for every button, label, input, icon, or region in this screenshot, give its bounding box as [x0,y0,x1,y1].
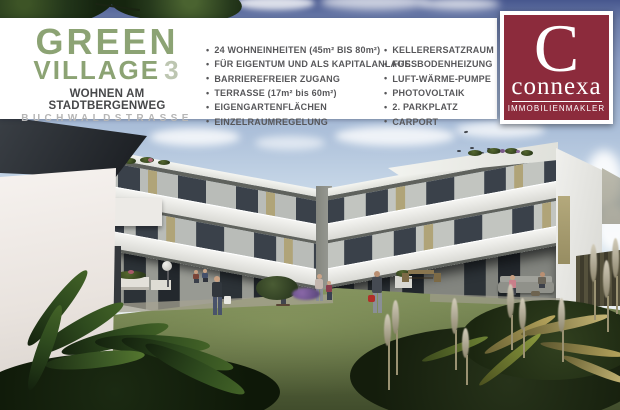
person-figure [326,281,332,300]
grass-plume [462,328,469,358]
person-figure [372,271,382,313]
plume-stem [455,330,457,370]
roof-flower [516,150,520,153]
garden-table [408,270,434,274]
plume-stem [562,330,564,362]
bullet-icon: • [384,117,387,126]
feature-text: KELLERERSATZRAUM [392,45,494,55]
roof-plant [158,160,170,165]
feature-list-right: •KELLERERSATZRAUM •FUSSBODENHEIZUNG •LUF… [384,43,494,129]
bullet-icon: • [384,60,387,69]
cloud [255,136,325,150]
bullet-icon: • [206,103,209,112]
grass-plume [507,284,514,318]
bullet-icon: • [206,89,209,98]
lavender-patch [292,288,320,300]
grass-plume [519,298,526,330]
scooter [276,304,290,306]
feature-item: •KELLERERSATZRAUM [384,43,494,57]
roof-plant [487,148,501,154]
bullet-icon: • [384,46,387,55]
real-estate-flyer: GREEN VILLAGE3 WOHNEN AM STADTBERGENWEG … [0,0,620,410]
bullet-icon: • [206,46,209,55]
connexa-name: connexa [504,75,609,99]
feature-item: •FÜR EIGENTUM UND ALS KAPITALANLAGE [206,57,411,71]
person-figure [538,272,546,288]
grass-plume [384,314,391,346]
watering-bag [224,296,231,304]
cloud [150,128,240,146]
grass-plume [392,300,399,334]
grass-plume [612,238,619,278]
feature-item: •CARPORT [384,114,494,128]
info-banner: GREEN VILLAGE3 WOHNEN AM STADTBERGENWEG … [0,18,497,119]
stool [531,291,540,296]
project-street: BUCHWALDSTRASSE [18,114,196,124]
project-logo: GREEN VILLAGE3 WOHNEN AM STADTBERGENWEG … [18,25,196,124]
feature-item: •BARRIEREFREIER ZUGANG [206,72,411,86]
bird-icon [470,147,474,149]
plume-stem [607,296,609,332]
garden-chair [434,273,441,282]
connexa-initial: C [504,18,609,78]
project-subtitle: WOHNEN AM STADTBERGENWEG [18,88,196,112]
grass-plume [451,298,458,334]
feature-item: •PHOTOVOLTAIK [384,86,494,100]
feature-text: EINZELRAUMREGELUNG [214,117,328,127]
roof-flower [500,149,505,153]
person-figure [212,276,222,315]
feature-text: BARRIEREFREIER ZUGANG [214,74,340,84]
connexa-tagline: IMMOBILIENMAKLER [504,104,609,113]
roof-plant [521,150,533,156]
plume-stem [616,276,618,314]
feature-text: 2. PARKPLATZ [392,102,458,112]
feature-text: CARPORT [392,117,438,127]
project-title-number: 3 [164,55,180,85]
feature-text: 24 WOHNEINHEITEN (45m² BIS 80m²) [214,45,380,55]
feature-item: •TERRASSE (17m² bis 60m²) [206,86,411,100]
bullet-icon: • [384,89,387,98]
person-figure [202,269,208,282]
plume-stem [466,355,468,385]
feature-text: FÜR EIGENTUM UND ALS KAPITALANLAGE [214,59,410,69]
feature-text: TERRASSE (17m² bis 60m²) [214,88,336,98]
feature-item: •FUSSBODENHEIZUNG [384,57,494,71]
roof-plant [468,150,482,156]
bullet-icon: • [206,74,209,83]
plume-stem [594,280,596,320]
feature-text: PHOTOVOLTAIK [392,88,464,98]
feature-item: •EIGENGARTENFLÄCHEN [206,100,411,114]
garden-chair [402,273,409,282]
roof-flower [148,158,153,162]
ball-lamp [162,261,172,271]
feature-item: •EINZELRAUMREGELUNG [206,114,411,128]
planter-flower [128,270,134,274]
bullet-icon: • [384,103,387,112]
grass-plume [603,260,610,298]
feature-item: •24 WOHNEINHEITEN (45m² BIS 80m²) [206,43,411,57]
garden-bush [256,276,298,300]
plume-stem [511,315,513,350]
plume-stem [396,330,398,375]
grass-plume [558,298,565,332]
end-wall-accent [558,196,570,264]
plume-stem [388,340,390,390]
ball-lamp [167,270,169,287]
feature-list-left: •24 WOHNEINHEITEN (45m² BIS 80m²) •FÜR E… [206,43,411,129]
logo-divider [512,101,602,102]
project-title-line2: VILLAGE3 [18,58,196,83]
connexa-logo: C connexa IMMOBILIENMAKLER [500,11,613,124]
grass-plume [590,244,597,282]
feature-item: •2. PARKPLATZ [384,100,494,114]
person-figure [193,270,199,283]
project-title-line1: GREEN [18,25,196,58]
bullet-icon: • [206,60,209,69]
feature-text: EIGENGARTENFLÄCHEN [214,102,327,112]
bird-icon [457,150,461,152]
bullet-icon: • [206,117,209,126]
feature-item: •LUFT-WÄRME-PUMPE [384,72,494,86]
feature-text: FUSSBODENHEIZUNG [392,59,492,69]
red-watering-can [368,295,375,302]
feature-text: LUFT-WÄRME-PUMPE [392,74,491,84]
project-title-word: VILLAGE [33,55,160,85]
bullet-icon: • [384,74,387,83]
cloud [335,126,455,146]
plume-stem [523,328,525,358]
